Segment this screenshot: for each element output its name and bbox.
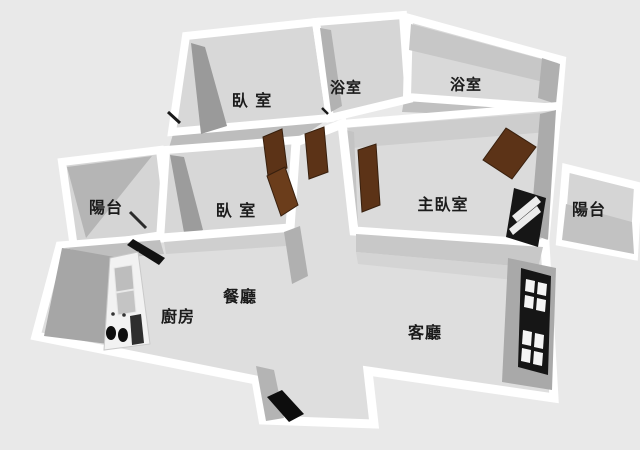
bathroom-door <box>305 127 328 179</box>
window-pane <box>534 333 544 349</box>
room-label-living-room: 客廳 <box>408 319 442 343</box>
bathroom-2 <box>407 18 562 108</box>
bathroom-1 <box>316 15 409 118</box>
kitchen-unit-knob <box>122 313 126 317</box>
stove-burner <box>106 326 116 340</box>
master-bedroom-door <box>358 144 380 212</box>
bedroom-1 <box>168 22 330 134</box>
floorplan-render: 臥 室 浴室 浴室 陽台 臥 室 主臥室 陽台 餐廳 廚房 客廳 <box>0 0 640 450</box>
window-pane <box>521 348 531 363</box>
window-pane <box>537 282 547 296</box>
living-room-window <box>502 258 556 390</box>
window-pane <box>522 330 532 346</box>
room-label-bathroom-1: 浴室 <box>330 77 362 98</box>
room-label-balcony-right: 陽台 <box>572 196 606 220</box>
room-label-balcony-left: 陽台 <box>89 194 123 218</box>
window-pane <box>533 351 543 366</box>
room-label-bathroom-2: 浴室 <box>450 74 482 95</box>
window-pane <box>525 279 535 293</box>
stove-burner <box>118 328 128 342</box>
room-label-kitchen: 廚房 <box>161 303 195 327</box>
kitchen-unit-panel-upper <box>114 265 134 292</box>
window-pane <box>524 295 534 309</box>
room-label-dining-room: 餐廳 <box>223 283 257 307</box>
kitchen-unit-panel-lower <box>116 290 136 315</box>
window-pane <box>536 298 546 312</box>
floorplan-canvas <box>0 0 640 450</box>
kitchen-unit-knob <box>111 312 115 316</box>
room-label-bedroom-2: 臥 室 <box>216 197 257 221</box>
room-label-bedroom-1: 臥 室 <box>232 87 273 111</box>
room-label-master-bedroom: 主臥室 <box>417 191 468 215</box>
